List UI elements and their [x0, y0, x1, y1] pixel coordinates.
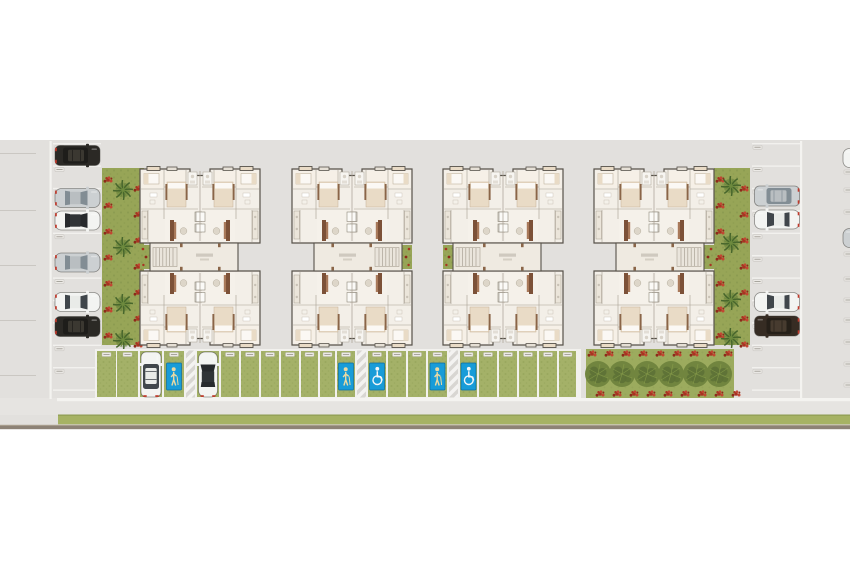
- plan-border-light: [0, 425, 850, 426]
- grass-parking-space: [559, 351, 576, 397]
- palm-tree-icon: [721, 233, 741, 253]
- grass-parking-space: [241, 351, 259, 397]
- senior-parking-sign: [339, 363, 354, 390]
- verge-edge: [58, 415, 850, 416]
- bottom-curb-line: [57, 398, 850, 401]
- parking-space-label: [55, 347, 64, 351]
- palm-tree-icon: [721, 176, 741, 196]
- grass-parking-space: [301, 351, 318, 397]
- palm-tree-icon: [113, 294, 133, 314]
- grass-parking-space: [320, 351, 335, 397]
- bottom-parking-row: [95, 349, 581, 399]
- palm-tree-icon: [721, 290, 741, 310]
- parking-space-label: [246, 353, 255, 357]
- silver-sedan-car: [55, 187, 100, 209]
- no-parking-hatch: [357, 351, 366, 398]
- silver-suv-car: [755, 184, 800, 207]
- parking-divider-line: [752, 165, 800, 166]
- parking-space-label: [753, 280, 762, 284]
- street-stall-line: [0, 375, 36, 376]
- parking-space-label: [844, 383, 850, 387]
- accessible-parking-sign: [461, 363, 476, 390]
- white-suv-car: [139, 352, 162, 397]
- senior-parking-sign: [430, 363, 445, 390]
- street-stall-line: [0, 153, 36, 154]
- parking-space-label: [753, 347, 762, 351]
- parking-space-label: [844, 362, 850, 366]
- white_black-sedan-car: [55, 209, 100, 231]
- round-tree-canopy: [634, 361, 660, 387]
- plan-border-dark: [0, 426, 850, 429]
- parking-space-label: [844, 340, 850, 344]
- street-stall-line: [0, 210, 36, 211]
- palm-tree-icon: [721, 328, 741, 348]
- parking-space-label: [844, 277, 850, 281]
- street-stall-line: [0, 320, 36, 321]
- parking-space-label: [753, 257, 762, 261]
- parking-divider-line: [752, 233, 800, 234]
- parking-space-label: [286, 353, 295, 357]
- black-suv-car: [55, 144, 100, 167]
- grass-parking-space: [388, 351, 406, 397]
- no-parking-hatch: [449, 351, 458, 398]
- parking-divider-line: [53, 345, 101, 346]
- parking-space-label: [753, 145, 762, 149]
- parking-space-label: [323, 353, 332, 357]
- right-curb-line: [800, 141, 802, 399]
- street-stall-line: [0, 265, 36, 266]
- parking-space-label: [226, 353, 235, 357]
- senior-parking-sign: [167, 363, 182, 390]
- parking-space-label: [266, 353, 275, 357]
- grass-parking-space: [117, 351, 138, 397]
- parking-space-label: [373, 353, 382, 357]
- parking-space-label: [504, 353, 513, 357]
- parking-space-label: [753, 168, 762, 172]
- parking-divider-line: [752, 143, 800, 144]
- black-suv-car: [55, 315, 100, 338]
- grass-parking-space: [221, 351, 239, 397]
- palm-tree-icon: [113, 180, 133, 200]
- parking-space-label: [123, 353, 132, 357]
- round-tree-canopy: [585, 361, 611, 387]
- parking-space-label: [433, 353, 442, 357]
- parking-divider-line: [752, 277, 800, 278]
- parking-space-label: [342, 353, 351, 357]
- grass-parking-space: [479, 351, 497, 397]
- parking-divider-line: [53, 367, 101, 368]
- grass-parking-space: [97, 351, 116, 397]
- parking-space-label: [753, 369, 762, 373]
- white-sedan-car: [755, 208, 800, 230]
- round-tree-canopy: [658, 361, 684, 387]
- parking-divider-line: [53, 277, 101, 278]
- parking-space-label: [484, 353, 493, 357]
- parking-divider-line: [752, 389, 800, 390]
- accessible-parking-sign: [370, 363, 385, 390]
- left-curb-line: [50, 141, 52, 399]
- parking-space-label: [55, 280, 64, 284]
- grass-parking-space: [408, 351, 426, 397]
- parking-space-label: [464, 353, 473, 357]
- parking-space-label: [844, 252, 850, 256]
- parking-space-label: [413, 353, 422, 357]
- grass-parking-space: [261, 351, 279, 397]
- parking-space-label: [170, 353, 179, 357]
- grass-parking-space: [519, 351, 537, 397]
- parking-divider-line: [752, 345, 800, 346]
- round-tree-canopy: [706, 361, 732, 387]
- parking-divider-line: [752, 255, 800, 256]
- white-sedan-car: [55, 291, 100, 313]
- parking-space-label: [544, 353, 553, 357]
- site-plan-canvas: [0, 0, 850, 570]
- parking-space-label: [753, 235, 762, 239]
- round-tree-canopy: [609, 361, 635, 387]
- parking-divider-line: [53, 143, 101, 144]
- parking-space-label: [305, 353, 314, 357]
- parking-space-label: [844, 318, 850, 322]
- parking-space-label: [844, 188, 850, 192]
- parking-space-label: [844, 170, 850, 174]
- parking-space-label: [55, 168, 64, 172]
- silver-sedan-car: [55, 251, 100, 273]
- parking-space-label: [524, 353, 533, 357]
- parking-space-label: [393, 353, 402, 357]
- white_black-sedan-car: [197, 352, 219, 397]
- roadside-verge: [58, 415, 850, 425]
- tree-grove: [585, 349, 741, 399]
- parking-divider-line: [53, 389, 101, 390]
- grass-parking-space: [281, 351, 299, 397]
- white-sedan-car: [755, 291, 800, 313]
- site-plan: [0, 0, 850, 570]
- parking-space-label: [55, 235, 64, 239]
- parking-divider-line: [53, 233, 101, 234]
- parking-space-label: [844, 298, 850, 302]
- parking-space-label: [563, 353, 572, 357]
- palm-tree-icon: [113, 237, 133, 257]
- parking-space-label: [102, 353, 111, 357]
- brown-suv-car: [755, 314, 800, 337]
- parking-space-label: [55, 369, 64, 373]
- grass-parking-space: [499, 351, 517, 397]
- round-tree-canopy: [683, 361, 709, 387]
- palm-tree-icon: [113, 330, 133, 350]
- no-parking-hatch: [186, 351, 195, 398]
- parking-space-label: [844, 210, 850, 214]
- grass-parking-space: [539, 351, 557, 397]
- parking-divider-line: [752, 367, 800, 368]
